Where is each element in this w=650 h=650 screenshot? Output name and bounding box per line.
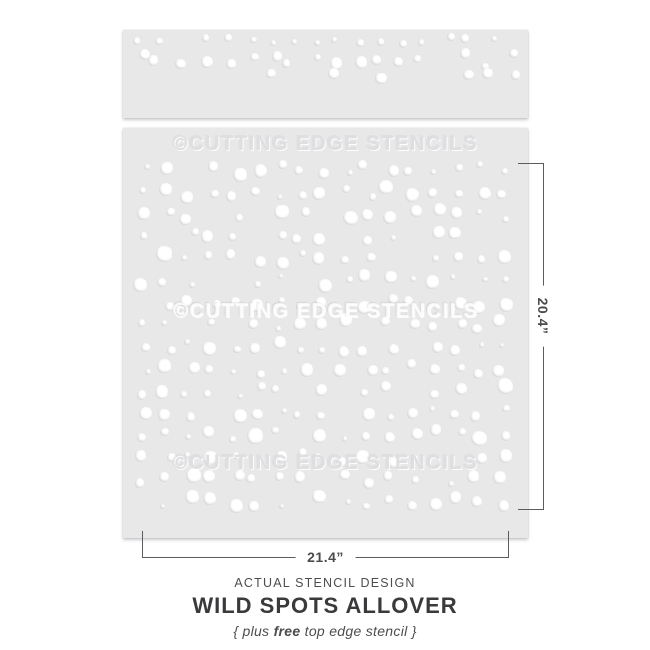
width-dimension-label: 21.4” [295,547,356,567]
spot-hole [137,433,146,442]
spot-hole [384,432,396,444]
spot-hole [312,233,325,246]
spot-hole [181,255,187,261]
spot-hole [477,255,485,263]
brand-watermark-middle: ©CUTTING EDGE STENCILS [123,300,528,322]
spot-hole [425,275,439,289]
spot-hole [448,227,461,240]
spot-hole [498,500,510,512]
spot-hole [186,412,196,422]
spot-hole [399,40,407,48]
spot-hole [233,168,247,182]
spot-hole [383,211,396,224]
spot-hole [167,346,177,356]
spot-hole [202,342,216,356]
spot-hole [312,490,326,504]
spot-hole [225,249,236,260]
spot-hole [393,57,403,67]
spot-hole [356,346,367,357]
spot-hole [254,256,266,268]
spot-hole [299,250,306,257]
spot-hole [246,474,256,484]
spot-hole [360,389,368,397]
spot-hole [175,59,186,70]
spot-hole [388,165,400,177]
spot-hole [482,68,493,79]
spot-hole [429,390,439,400]
spot-hole [432,255,439,262]
spot-hole [237,394,242,399]
spot-hole [274,205,288,219]
spot-hole [355,56,368,69]
spot-hole [346,276,353,283]
spot-hole [366,253,376,263]
spot-hole [460,48,471,59]
spot-hole [201,56,213,68]
spot-hole [367,365,378,376]
spot-hole [470,411,481,422]
spot-hole [430,169,436,175]
spot-hole [133,37,140,44]
spot-hole [294,166,303,175]
spot-hole [361,209,373,221]
spot-hole [345,499,351,505]
tagline-prefix: { plus [233,623,273,639]
spot-hole [139,407,152,420]
spot-hole [455,383,467,395]
spot-hole [250,53,258,61]
spot-hole [362,408,375,421]
spot-hole [139,187,146,194]
spot-hole [224,34,231,41]
spot-hole [184,339,190,345]
brand-watermark-bottom: ©CUTTING EDGE STENCILS [123,452,528,474]
spot-hole [375,73,387,85]
spot-hole [407,408,418,419]
spot-hole [338,346,350,358]
spot-hole [407,501,417,511]
spot-hole [502,216,509,223]
spot-hole [314,54,321,61]
spot-hole [248,501,259,512]
spot-hole [427,188,437,198]
spot-hole [369,193,376,200]
spot-hole [497,378,513,394]
spot-hole [390,235,396,241]
spot-hole [257,382,266,391]
spot-hole [291,39,297,45]
spot-hole [312,252,325,265]
spot-hole [343,211,358,226]
spot-hole [278,231,287,240]
spot-hole [476,161,483,168]
spot-hole [473,369,483,379]
spot-hole [291,234,301,244]
spot-hole [331,37,337,43]
spot-hole [235,214,243,222]
spot-hole [179,214,191,226]
spot-hole [371,55,381,65]
spot-hole [342,436,347,441]
spot-hole [432,342,444,354]
spot-hole [144,164,151,171]
product-image: ©CUTTING EDGE STENCILS ©CUTTING EDGE STE… [0,0,650,650]
spot-hole [427,322,437,332]
spot-hole [449,410,459,420]
spot-hole [203,492,216,505]
spot-hole [204,365,213,374]
allover-stencil-sheet: ©CUTTING EDGE STENCILS ©CUTTING EDGE STE… [123,128,528,538]
spot-hole [501,168,508,175]
spot-hole [491,36,497,42]
spot-hole [160,428,169,437]
spot-hole [271,427,279,435]
spot-hole [318,347,325,354]
spot-hole [279,504,284,509]
spot-hole [460,34,469,43]
spot-hole [450,274,456,280]
spot-hole [276,257,289,270]
spot-hole [411,476,419,484]
spot-hole [135,478,144,487]
spot-hole [357,160,367,170]
height-dimension-line: 20.4” [518,163,544,510]
spot-hole [449,345,460,356]
spot-hole [387,414,394,421]
spot-hole [156,246,172,262]
spot-hole [314,40,321,47]
spot-hole [191,228,200,237]
spot-hole [315,384,327,396]
spot-hole [272,51,283,62]
spot-hole [492,365,504,377]
spot-hole [448,481,454,487]
spot-hole [273,336,286,349]
spot-hole [458,428,467,437]
spot-hole [298,191,307,200]
spot-hole [347,170,353,176]
tagline-free: free [274,623,301,639]
spot-hole [281,408,288,415]
spot-hole [160,162,173,175]
spot-hole [185,490,199,504]
spot-hole [450,207,462,219]
spot-hole [270,40,276,46]
spot-hole [293,411,300,418]
caption-kicker: ACTUAL STENCIL DESIGN [0,576,650,590]
spot-hole [418,39,424,45]
spot-hole [210,190,219,199]
spot-hole [189,282,195,288]
height-dimension-label: 20.4” [533,286,553,347]
product-title: WILD SPOTS ALLOVER [0,593,650,619]
spot-hole [476,209,482,215]
spot-hole [479,342,485,348]
spot-hole [413,55,421,63]
spot-hole [277,194,283,200]
spot-hole [300,363,313,376]
spot-hole [208,161,219,172]
spot-hole [133,278,147,292]
spot-hole [429,364,440,375]
width-dimension-line: 21.4” [142,531,509,558]
spot-hole [362,236,372,246]
spot-hole [455,164,463,172]
spot-hole [137,390,147,400]
spot-hole [478,187,490,199]
spot-hole [429,498,443,512]
spot-hole [203,390,211,398]
spot-hole [297,347,304,354]
spot-hole [229,499,243,513]
spot-hole [157,359,171,373]
spot-hole [482,277,488,283]
spot-hole [266,69,276,79]
spot-hole [301,207,311,217]
spot-hole [202,426,214,438]
spot-hole [282,59,291,68]
spot-hole [333,364,346,377]
spot-hole [496,190,506,200]
spot-hole [356,39,364,47]
spot-hole [155,385,169,399]
spot-hole [380,381,391,392]
spot-hole [377,38,385,46]
spot-hole [384,495,393,504]
spot-hole [432,226,445,239]
spot-hole [271,385,279,393]
spot-hole [230,369,236,375]
spot-hole [228,233,236,241]
spot-hole [501,431,511,441]
spot-hole [410,205,422,217]
spot-hole [384,271,396,283]
spot-hole [249,343,260,354]
spot-hole [250,187,260,197]
spot-hole [328,68,339,79]
spot-hole [463,70,473,80]
spot-hole [247,428,263,444]
spot-hole [159,183,172,196]
spot-hole [281,368,287,374]
spot-hole [340,256,348,264]
spot-hole [201,230,213,242]
spot-hole [180,391,187,398]
spot-hole [497,250,511,264]
spot-hole [157,278,166,287]
spot-hole [226,59,236,69]
spot-hole [511,70,521,80]
spot-hole [316,412,324,420]
spot-hole [502,276,509,283]
spot-hole [471,431,487,447]
spot-hole [471,496,482,507]
spot-hole [275,326,281,332]
spot-hole [457,364,465,372]
spot-hole [378,180,392,194]
spot-hole [185,434,192,441]
spot-hole [278,274,284,280]
spot-hole [410,276,416,282]
spot-hole [254,281,261,288]
spot-hole [318,279,332,293]
spot-hole [233,409,247,423]
spot-hole [453,252,464,263]
spot-hole [166,208,175,217]
spot-hole [447,33,455,41]
spot-hole [388,344,399,355]
spot-hole [202,34,210,42]
spot-hole [188,362,200,374]
spot-hole [278,160,287,169]
spot-hole [312,429,326,443]
spot-hole [471,324,482,335]
spot-hole [411,428,423,440]
spot-hole [342,185,351,194]
spot-hole [137,207,150,220]
spot-hole [140,232,148,240]
spot-hole [148,55,159,66]
spot-hole [312,187,325,200]
spot-hole [251,409,263,421]
spot-hole [145,369,151,375]
spot-hole [229,436,236,443]
spot-hole [449,491,461,503]
spot-hole [180,191,194,205]
brand-watermark-top: ©CUTTING EDGE STENCILS [123,133,528,155]
spot-hole [361,432,370,441]
spot-hole [204,251,213,260]
spot-hole [254,164,268,178]
spot-hole [403,167,412,176]
spot-hole [405,188,419,202]
spot-hole [406,359,416,369]
caption-tagline: { plus free top edge stencil } [0,623,650,639]
spot-hole [160,504,165,509]
spot-hole [429,406,436,413]
spot-hole [141,343,150,352]
tagline-suffix: top edge stencil } [300,623,416,639]
spot-hole [233,346,241,354]
spot-hole [358,269,371,282]
spot-hole [226,191,236,201]
spot-hole [433,203,446,216]
spot-hole [499,343,505,349]
spot-hole [509,49,518,58]
spot-hole [454,190,463,199]
spot-hole [363,478,374,489]
caption-block: ACTUAL STENCIL DESIGN WILD SPOTS ALLOVER… [0,576,650,639]
spot-hole [318,168,329,179]
top-edge-stencil-sheet [123,30,528,118]
spot-hole [155,38,163,46]
spot-hole [256,370,265,379]
spot-hole [381,367,389,375]
spot-hole [430,424,441,435]
spot-hole [502,405,509,412]
spot-hole [362,503,370,511]
spot-hole [158,409,170,421]
spot-hole [250,37,257,44]
